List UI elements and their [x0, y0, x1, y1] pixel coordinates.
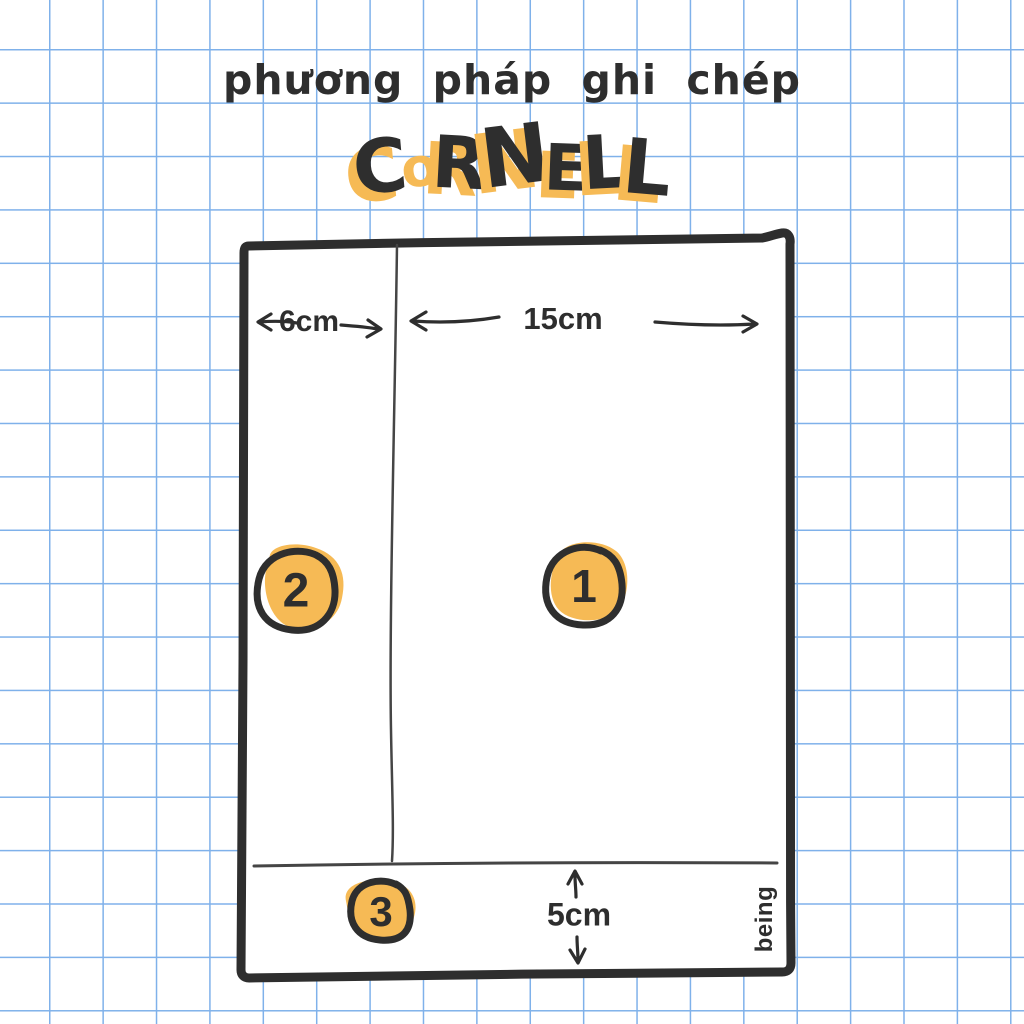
summary-marker-number: 3	[369, 888, 392, 936]
cornell-diagram	[0, 0, 1024, 1024]
grid-paper-background: phương pháp ghi chép CoRNELL	[0, 0, 1024, 1024]
being-logo: being	[751, 886, 779, 953]
cue-marker-number: 2	[283, 564, 310, 619]
notes-marker-number: 1	[571, 559, 597, 613]
summary-height-label: 5cm	[547, 897, 611, 934]
notes-width-label: 15cm	[523, 301, 602, 337]
cue-width-label: 6cm	[279, 305, 339, 339]
